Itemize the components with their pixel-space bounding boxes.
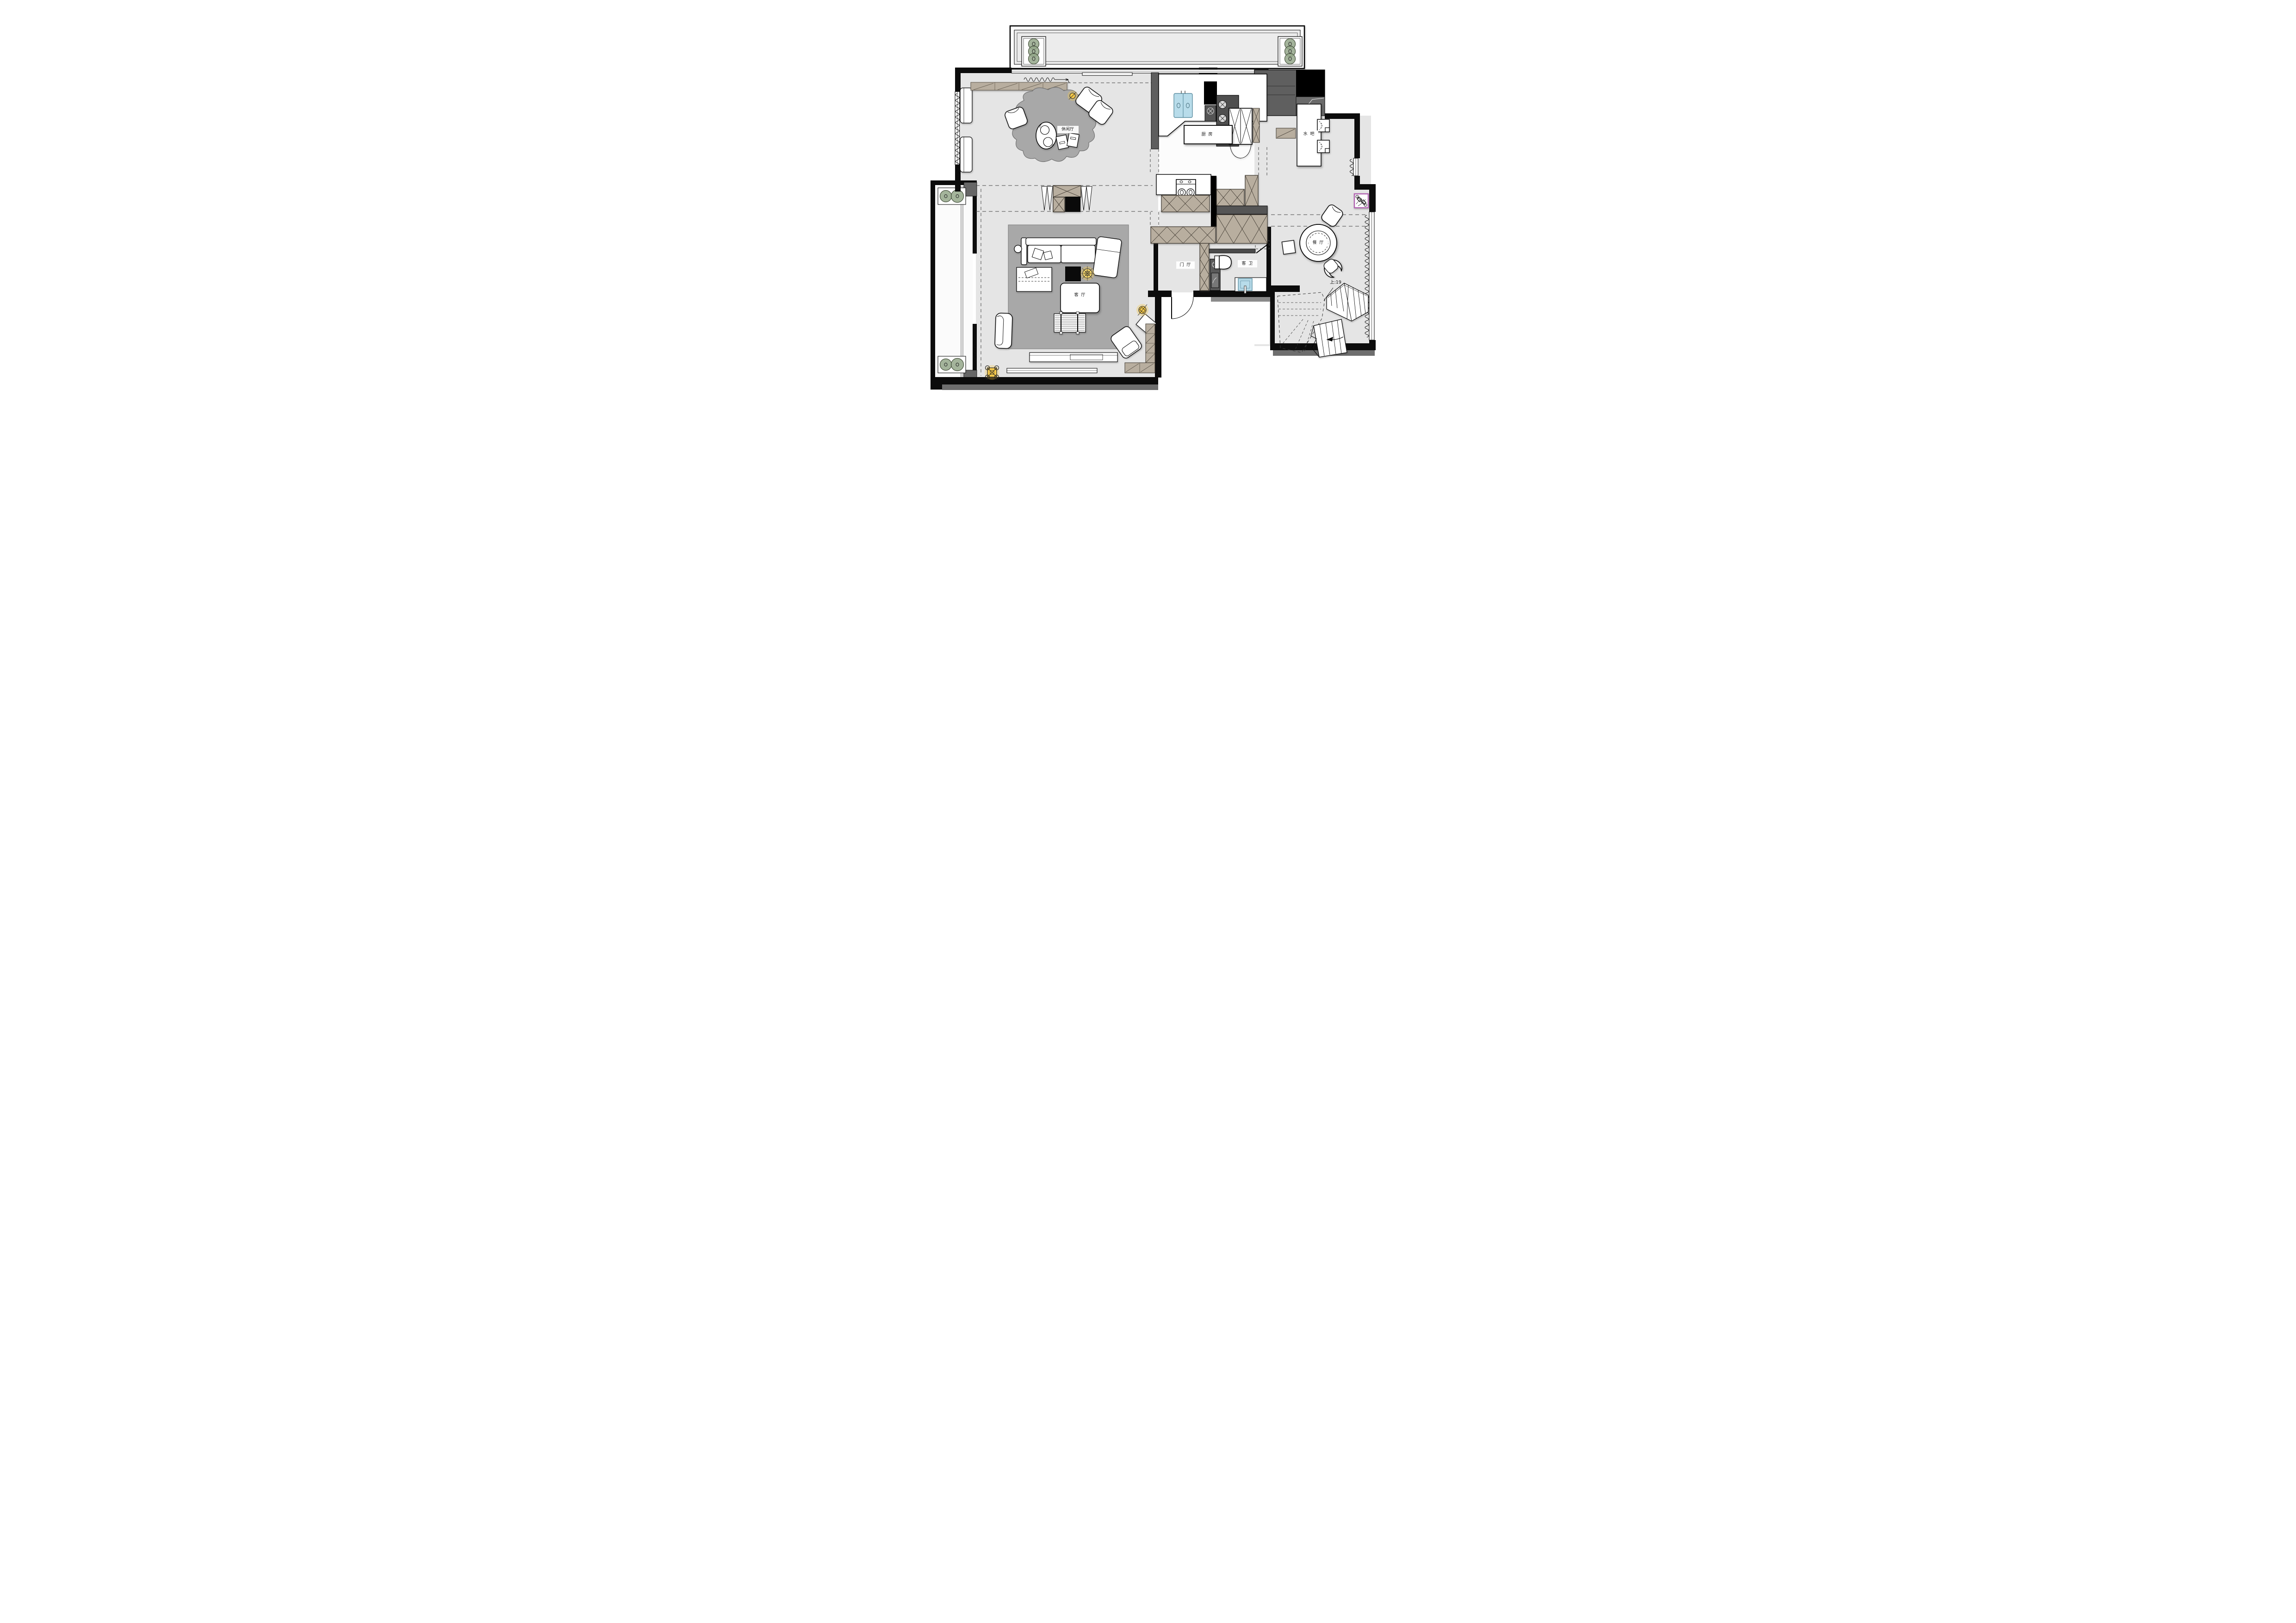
- shoe-cabinet-column: [1200, 243, 1209, 291]
- label-living: 客 厅: [1070, 291, 1090, 299]
- tall-cabinet: [1253, 108, 1260, 142]
- label-stairs-up: 上:19: [1325, 279, 1347, 286]
- tv-console: [1030, 353, 1117, 362]
- plant-icon: [1028, 39, 1039, 64]
- planter-left-bottom: [938, 356, 966, 373]
- label-guest-bath: 客 卫: [1238, 260, 1257, 267]
- bar-chair: [1317, 119, 1329, 132]
- coffee-table: [1017, 267, 1052, 291]
- plant-icon: [1285, 39, 1295, 64]
- side-table: [1282, 240, 1296, 254]
- label-foyer: 门 厅: [1176, 261, 1195, 269]
- hood-box: [1205, 105, 1216, 121]
- floor-plan-drawing: [861, 0, 1435, 406]
- label-kitchen: 厨 房: [1198, 131, 1216, 138]
- sideboard: [1276, 128, 1296, 138]
- planter-balcony-left: [1022, 37, 1046, 66]
- floor-lamp-square: [985, 365, 999, 380]
- sink-icon: [1174, 91, 1192, 118]
- label-water-bar: 水 吧: [1300, 130, 1318, 138]
- armchair: [994, 313, 1012, 348]
- side-table-oval: [1036, 122, 1056, 149]
- window-sill-band: [1007, 368, 1097, 373]
- label-leisure-hall: 休闲厅: [1057, 126, 1079, 133]
- planter-balcony-right: [1278, 37, 1302, 66]
- equipment-box-purple: [1354, 194, 1368, 208]
- toilet-icon: [1215, 255, 1231, 269]
- slatted-bench: [1054, 312, 1086, 334]
- balcony-top: [1010, 26, 1304, 68]
- kitchen-west-pier: [1151, 73, 1159, 149]
- bar-chair: [1317, 140, 1329, 153]
- kitchen-counter-south: [1151, 174, 1267, 243]
- oven-tower: [1204, 81, 1217, 105]
- side-table-black: [1065, 266, 1081, 281]
- ceiling-light-icon: [1136, 304, 1148, 316]
- label-dining: 餐 厅: [1309, 239, 1328, 247]
- planter-left-top: [938, 188, 966, 204]
- vanity-sink: [1235, 278, 1266, 293]
- ceiling-light-icon: [1067, 91, 1078, 101]
- floor-plan-page: 休闲厅 厨 房 水 吧 餐 厅 客 厅 门 厅 客 卫 上:19: [861, 0, 1435, 406]
